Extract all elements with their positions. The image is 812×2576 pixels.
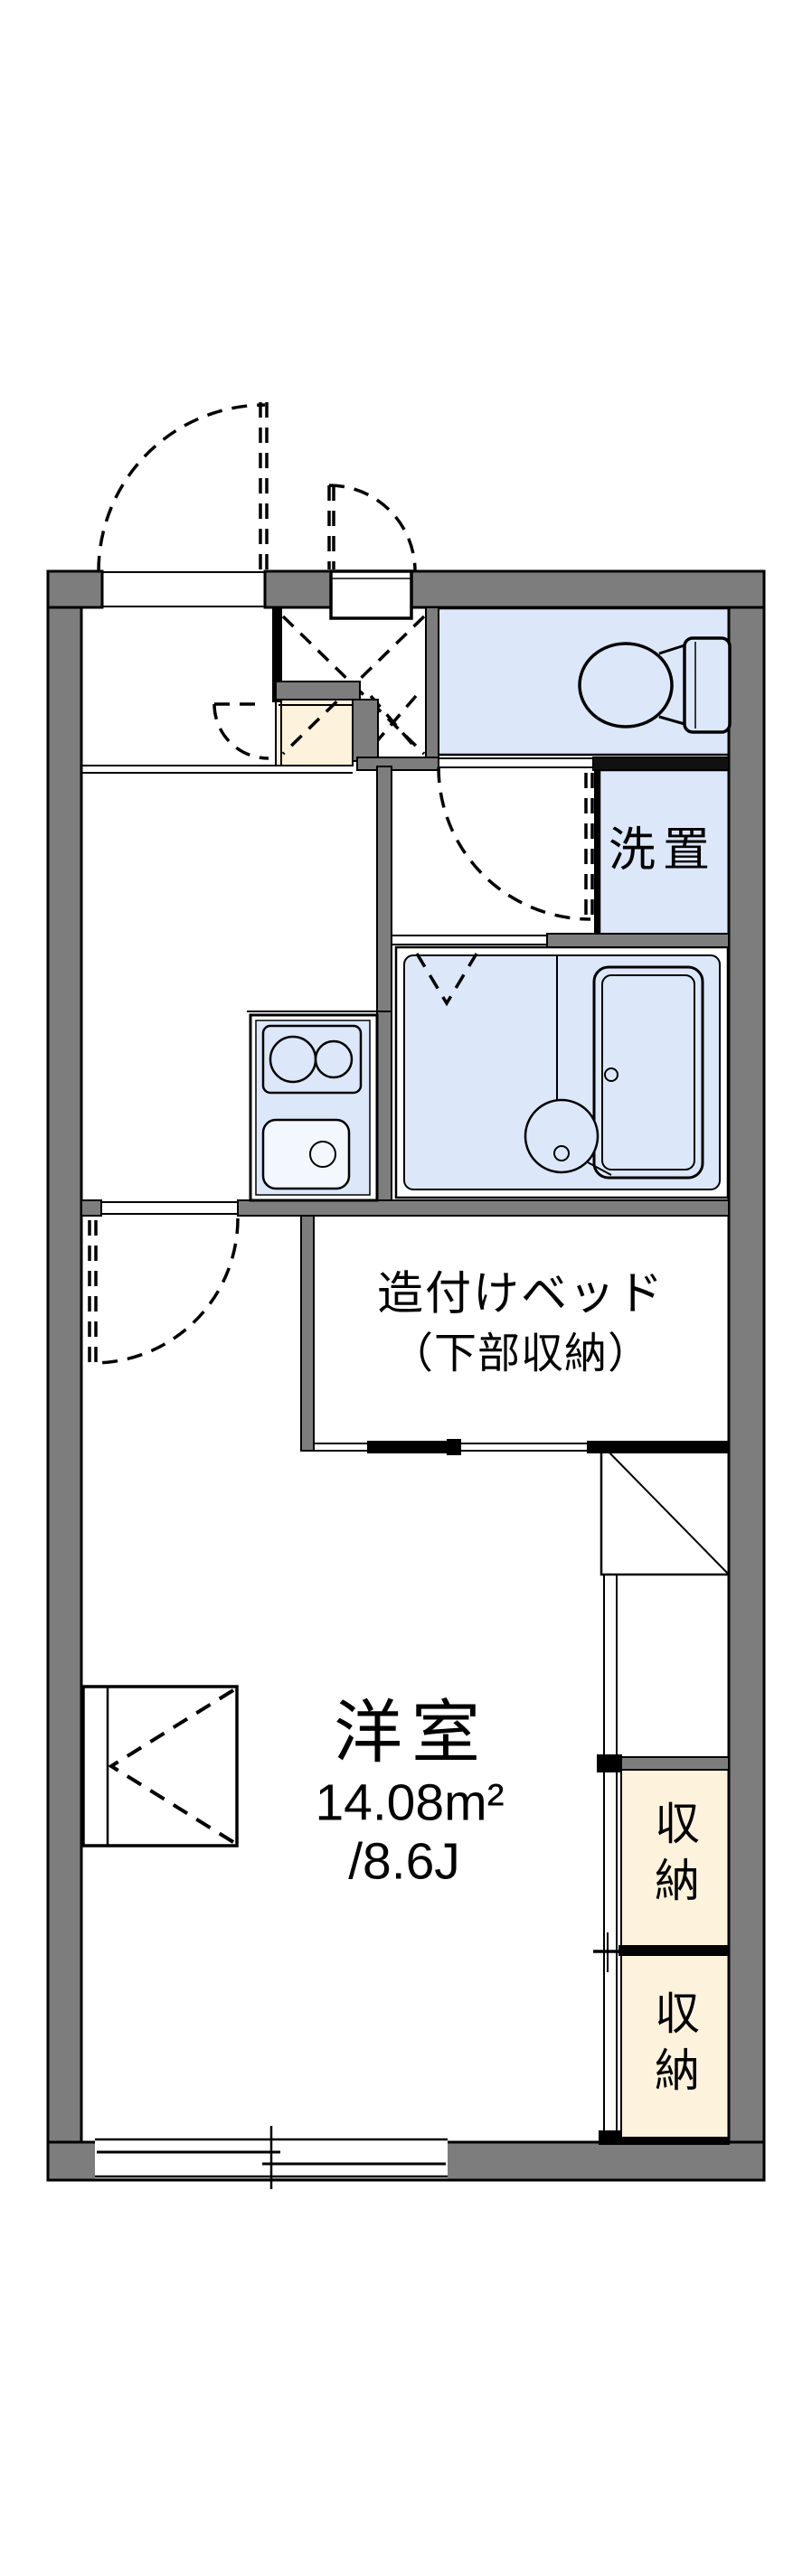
meter-box-door-swing <box>329 485 415 571</box>
closet-step-wall-v <box>353 700 378 761</box>
mid-wall <box>238 1200 729 1216</box>
toilet-bottom-wall <box>593 757 729 770</box>
outer-wall-right <box>729 571 764 2180</box>
washer-space-label: 洗置 <box>609 827 717 874</box>
entrance-door-swing <box>99 402 267 571</box>
bed-left-wall <box>301 1216 314 1451</box>
top-wall-left-block <box>48 571 102 607</box>
entrance-step <box>276 700 353 766</box>
top-wall-right-block <box>411 571 764 607</box>
toilet-icon <box>580 638 730 732</box>
built-in-bed-label-line1: 造付けベッド <box>377 1271 665 1317</box>
door-symbols <box>90 402 592 1363</box>
room-area-sqm-label: 14.08m² <box>315 1778 504 1829</box>
closet-bottom-line <box>619 2138 729 2144</box>
kitchen-bath-wall <box>377 766 392 1202</box>
closet-bottom-wall <box>357 757 439 770</box>
mid-wall-left-stub <box>81 1200 101 1216</box>
refrigerator-space <box>601 1444 729 1575</box>
room-door-swing <box>90 1218 238 1363</box>
room-name-label: 洋室 <box>334 1699 489 1768</box>
bathtub-icon <box>594 967 703 1178</box>
washer-left-wall <box>595 770 600 935</box>
toilet-left-wall <box>426 607 439 757</box>
bed-front-post <box>448 1440 460 1454</box>
sink-icon <box>263 1120 349 1189</box>
hall-closet-door-swing <box>214 704 269 758</box>
closet-upper-label: 収納 <box>651 1800 696 1913</box>
closet-divider-wall <box>619 1946 729 1955</box>
room-area-jo-label: /8.6J <box>348 1837 460 1888</box>
washroom-door-swing <box>439 767 592 919</box>
closet-lower-label: 収納 <box>651 1989 696 2103</box>
meter-box <box>331 571 411 618</box>
floorplan-canvas: 洗置 造付けベッド （下部収納） 洋室 14.08m² /8.6J 収納 収納 <box>0 0 812 2576</box>
closet-top-post <box>598 1755 621 1772</box>
track-bottom-post <box>600 2131 619 2144</box>
closet-step-wall-h <box>276 682 360 700</box>
top-wall-mid-block <box>265 571 332 607</box>
bed-front-wall-b <box>588 1442 729 1453</box>
stove-icon <box>263 1026 361 1093</box>
bed-front-wall-a <box>368 1442 449 1453</box>
casement-opening-symbol <box>83 1687 237 1846</box>
kitchen-counter <box>247 1011 392 1200</box>
built-in-bed-label-line2: （下部収納） <box>391 1332 651 1375</box>
bath-top-wall <box>547 934 729 947</box>
outer-wall-left <box>48 571 81 2180</box>
